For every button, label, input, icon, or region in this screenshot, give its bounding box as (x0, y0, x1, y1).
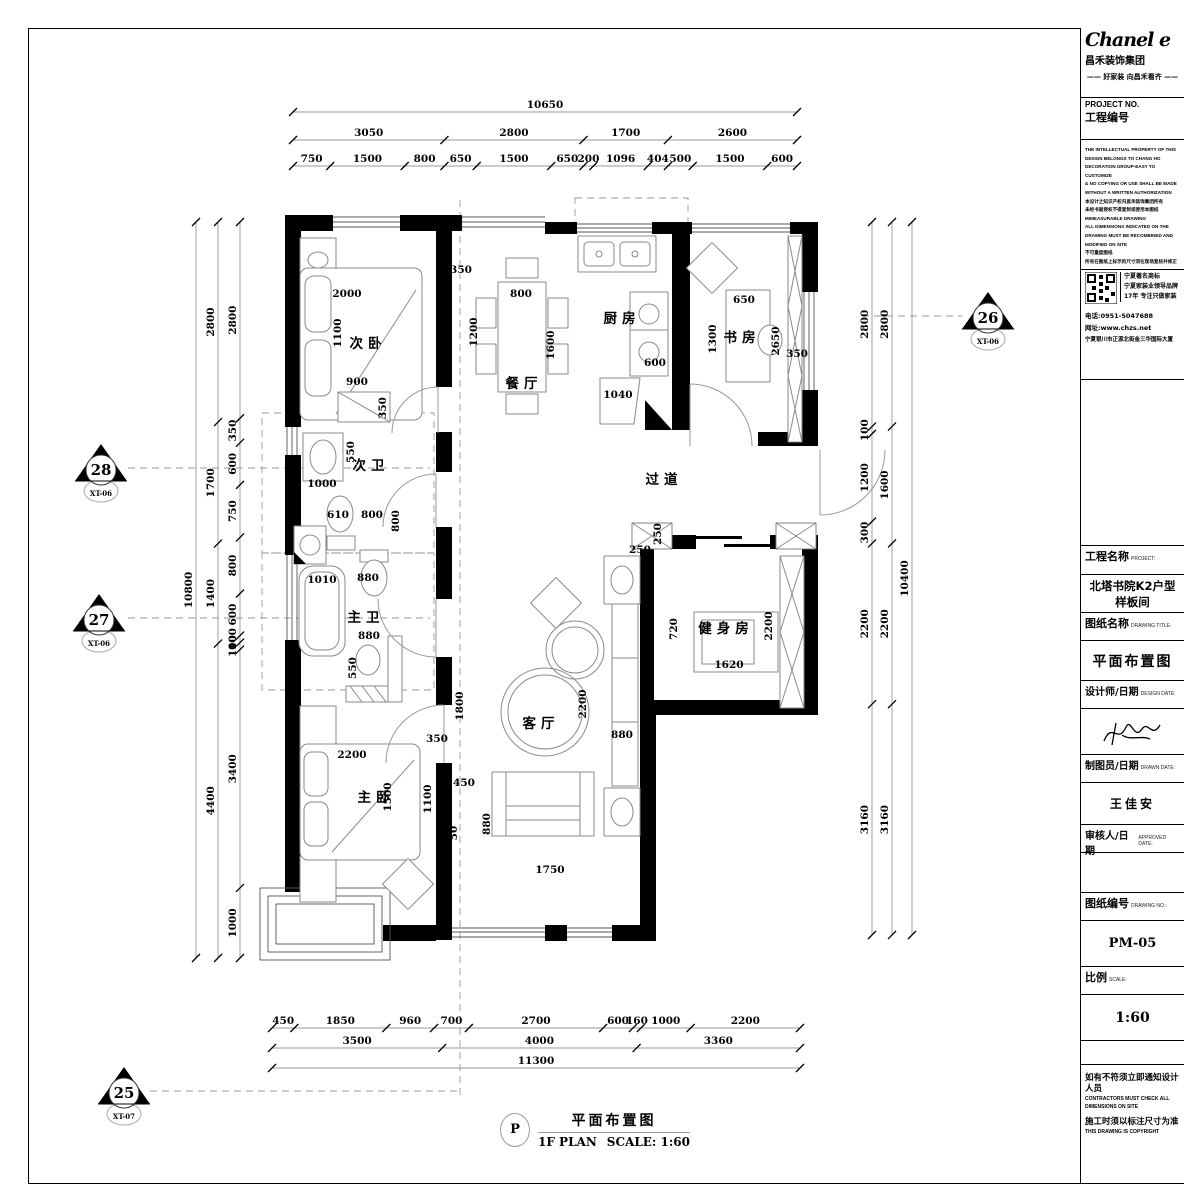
approver-value (1081, 853, 1184, 893)
dim-label: 1500 (382, 782, 394, 811)
dim-label: 350 (786, 348, 808, 360)
dim-label: 1200 (468, 317, 480, 346)
dim-label: 1100 (422, 784, 434, 813)
dim-label: 1010 (307, 574, 336, 586)
axis-marker: 25XT-07 (98, 1067, 150, 1125)
dimension-value: 2800 (879, 310, 891, 339)
dimension-value: 1500 (353, 153, 382, 165)
axis-marker: 28XT-06 (75, 444, 127, 502)
scale-value: 1:60 (1081, 995, 1184, 1041)
dimension-value: 100 (859, 419, 871, 441)
dimension-chain: 10650 (289, 99, 801, 116)
dimension-value: 3500 (342, 1035, 371, 1047)
dimension-value: 4000 (525, 1035, 554, 1047)
dimension-chain: 10800 (183, 218, 200, 962)
brand-slogans: 宁夏著名商标宁夏家装业领导品牌17年 专注只做家装 (1120, 272, 1178, 302)
room-label: 书房 (724, 329, 761, 346)
dimension-chain: 280035060075080060010010034001000 (227, 218, 244, 962)
dim-label: 900 (346, 376, 368, 388)
axis-marker-number: 27 (89, 611, 110, 629)
figure-scale-label: SCALE: 1:60 (607, 1135, 690, 1149)
project-name-label: 工程名称PROJECT: (1081, 545, 1184, 575)
qr-code-icon (1085, 272, 1117, 304)
dimension-chain: 10400 (899, 218, 916, 939)
figure-plan-label: 1F PLAN (538, 1135, 597, 1149)
room-label: 次卧 (350, 335, 387, 352)
dim-label: 720 (668, 618, 680, 640)
website: 网址:www.chzs.net (1085, 322, 1180, 334)
axis-marker-number: 26 (978, 309, 999, 327)
draftsman-label: 制图员/日期DRAWN DATE: (1081, 755, 1184, 783)
dimension-value: 1400 (205, 579, 217, 608)
dim-label: 880 (611, 729, 633, 741)
site-notes: 如有不符须立即通知设计人员 CONTRACTORS MUST CHECK ALL… (1081, 1065, 1184, 1184)
dim-label: 880 (481, 813, 493, 835)
dimension-value: 10400 (899, 560, 911, 597)
signature-icon (1098, 715, 1168, 749)
dim-label: 250 (652, 523, 664, 545)
axis-marker-code: XT-06 (90, 489, 112, 498)
dim-label: 600 (644, 357, 666, 369)
dim-label: 1800 (454, 691, 466, 720)
dimension-value: 1700 (611, 127, 640, 139)
dimension-chain: 11300 (268, 1055, 804, 1072)
dimension-value: 2800 (227, 306, 239, 335)
figure-title-cn: 平面布置图 (538, 1110, 690, 1133)
company-name: 昌禾装饰集团 (1085, 56, 1145, 67)
dimension-value: 650 (450, 153, 472, 165)
dim-label: 250 (629, 544, 651, 556)
dim-label: 350 (450, 264, 472, 276)
dimension-value: 600 (227, 453, 239, 475)
dim-label: 2200 (337, 749, 366, 761)
project-name-value: 北塔书院K2户型样板间 (1081, 575, 1184, 613)
dimension-chain: 350040003360 (268, 1035, 804, 1052)
room-label: 客厅 (522, 715, 560, 732)
dim-label: 2000 (332, 288, 361, 300)
dimension-chain: 2800160022003160 (879, 218, 896, 939)
axis-marker-code: XT-06 (977, 337, 999, 346)
dim-label: 2650 (770, 326, 782, 355)
dimension-value: 160 (626, 1015, 648, 1027)
dimension-value: 3050 (354, 127, 383, 139)
dimension-value: 1500 (715, 153, 744, 165)
project-no-label-en: PROJECT NO. (1085, 100, 1180, 109)
dimension-value: 300 (859, 522, 871, 544)
dimension-value: 2800 (859, 310, 871, 339)
dim-label: 450 (453, 777, 475, 789)
dimension-value: 2600 (718, 127, 747, 139)
plan-bubble: P (500, 1113, 530, 1147)
axis-marker-number: 25 (114, 1084, 135, 1102)
dimension-value: 2200 (731, 1015, 760, 1027)
axis-marker-code: XT-06 (88, 639, 110, 648)
dimension-value: 1000 (651, 1015, 680, 1027)
axis-marker: 27XT-06 (73, 594, 125, 652)
figure-title: P 平面布置图 1F PLAN SCALE: 1:60 (500, 1110, 690, 1149)
dim-label: 800 (390, 510, 402, 532)
dimension-value: 600 (227, 604, 239, 626)
dimension-value: 3160 (879, 805, 891, 834)
dimension-value: 1700 (205, 468, 217, 497)
dimension-chain: 2800170014004400 (205, 218, 222, 962)
room-label: 餐厅 (505, 375, 543, 392)
dimension-chain: 7501500800650150065020010964045001500600 (289, 153, 801, 170)
dim-label: 880 (358, 630, 380, 642)
dimension-value: 1000 (227, 908, 239, 937)
room-label: 过道 (646, 471, 683, 488)
dimension-value: 2700 (521, 1015, 550, 1027)
dim-label: 1300 (707, 324, 719, 353)
spacer (1081, 380, 1184, 545)
dim-label: 550 (345, 441, 357, 463)
dimension-value: 1096 (606, 153, 635, 165)
dimension-value: 3360 (704, 1035, 733, 1047)
axis-marker-code: XT-07 (113, 1112, 135, 1121)
room-label: 健身房 (698, 620, 754, 637)
dimension-value: 500 (669, 153, 691, 165)
project-no-label-cn: 工程编号 (1085, 109, 1180, 125)
brand-logo-text: Chanel e (1085, 29, 1170, 51)
dim-label: 50 (448, 826, 460, 841)
room-label: 厨房 (604, 310, 641, 327)
dimension-chain: 2800100120030022003160 (859, 218, 876, 939)
dimension-value: 3160 (859, 805, 871, 834)
dimension-value: 3400 (227, 754, 239, 783)
company-tagline: —— 好家装 向昌禾看齐 —— (1085, 72, 1180, 82)
draftsman-value: 王佳安 (1081, 783, 1184, 825)
dimension-value: 350 (227, 420, 239, 442)
dimension-chain: 4501850960700270060016010002200 (268, 1015, 804, 1032)
dim-label: 880 (357, 572, 379, 584)
designer-label: 设计师/日期DESIGN DATE: (1081, 681, 1184, 709)
dimension-value: 700 (441, 1015, 463, 1027)
dimension-value: 600 (771, 153, 793, 165)
dimension-value: 1600 (879, 470, 891, 499)
dimension-value: 1850 (326, 1015, 355, 1027)
dim-label: 800 (510, 288, 532, 300)
dimension-value: 4400 (205, 786, 217, 815)
dimension-value: 200 (577, 153, 599, 165)
dimension-value: 750 (301, 153, 323, 165)
drawing-no-label: 图纸编号DRAWING NO.: (1081, 893, 1184, 921)
approver-label: 审核人/日期APPROVED DATE: (1081, 825, 1184, 853)
dim-label: 2200 (577, 689, 589, 718)
scale-label: 比例SCALE: (1081, 967, 1184, 995)
dim-label: 1100 (332, 318, 344, 347)
dim-label: 610 (327, 509, 349, 521)
drawing-title-label: 图纸名称DRAWING TITLE: (1081, 613, 1184, 641)
floor-plan: 1065030502800170026007501500800650150065… (0, 0, 1200, 1200)
designer-signature (1081, 709, 1184, 755)
dimension-value: 450 (272, 1015, 294, 1027)
dim-label: 350 (377, 397, 389, 419)
dimension-value: 750 (227, 500, 239, 522)
axis-marker: 26XT-06 (962, 292, 1014, 350)
dimension-value: 650 (556, 153, 578, 165)
room-label: 主卫 (348, 609, 385, 626)
company-logo: Chanel e 昌禾装饰集团 —— 好家装 向昌禾看齐 —— (1081, 28, 1184, 98)
dim-label: 350 (426, 733, 448, 745)
axis-marker-number: 28 (91, 461, 112, 479)
title-block: Chanel e 昌禾装饰集团 —— 好家装 向昌禾看齐 —— PROJECT … (1080, 28, 1184, 1184)
dimension-value: 2200 (859, 609, 871, 638)
dimension-value: 800 (414, 153, 436, 165)
dimension-value: 10650 (527, 99, 564, 111)
dimension-value: 404 (647, 153, 669, 165)
dim-label: 1000 (307, 478, 336, 490)
project-no-section: PROJECT NO. 工程编号 (1081, 98, 1184, 140)
drawing-sheet: { "title_block": { "logo": { "brand": "C… (0, 0, 1200, 1200)
dimension-value: 11300 (518, 1055, 555, 1067)
spacer (1081, 1041, 1184, 1065)
dim-label: 2200 (763, 611, 775, 640)
dim-label: 1750 (535, 864, 564, 876)
dimension-value: 2800 (205, 307, 217, 336)
dim-label: 550 (347, 657, 359, 679)
drawing-title-value: 平面布置图 (1081, 641, 1184, 681)
phone: 电话:0951-5047688 (1085, 310, 1180, 322)
brand-box: 宁夏著名商标宁夏家装业领导品牌17年 专注只做家装 电话:0951-504768… (1081, 270, 1184, 380)
dimension-value: 2200 (879, 609, 891, 638)
dimension-value: 800 (227, 555, 239, 577)
dimension-chain: 3050280017002600 (289, 127, 801, 144)
dim-label: 1600 (545, 330, 557, 359)
drawing-no-value: PM-05 (1081, 921, 1184, 967)
dim-label: 650 (733, 294, 755, 306)
dimension-value: 2800 (499, 127, 528, 139)
dimension-value: 1500 (499, 153, 528, 165)
dim-label: 800 (361, 509, 383, 521)
room-label: 次卫 (353, 457, 390, 474)
dim-label: 1620 (714, 659, 743, 671)
dimension-value: 1200 (859, 463, 871, 492)
dimension-value: 100 (227, 635, 239, 657)
dim-label: 1040 (603, 389, 632, 401)
address: 宁夏银川市正源北街金三华国际大厦 (1085, 334, 1180, 346)
dimension-value: 960 (399, 1015, 421, 1027)
dimension-value: 10800 (183, 572, 195, 609)
copyright-notes: THE INTELLECTUAL PROPERTY OF THISDESIGN … (1081, 140, 1184, 270)
